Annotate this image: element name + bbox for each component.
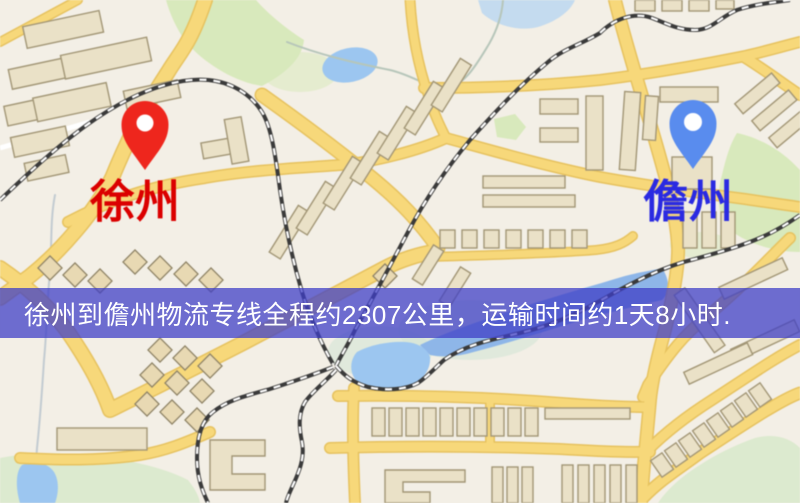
pin-hole bbox=[137, 115, 154, 132]
route-info-text: 徐州到儋州物流专线全程约2307公里，运输时间约1天8小时. bbox=[24, 295, 731, 332]
logistics-route-map-screenshot: 徐州 儋州 徐州到儋州物流专线全程约2307公里，运输时间约1天8小时. bbox=[0, 0, 800, 503]
destination-label: 儋州 bbox=[643, 177, 733, 227]
origin-label: 徐州 bbox=[89, 177, 180, 227]
route-info-banner: 徐州到儋州物流专线全程约2307公里，运输时间约1天8小时. bbox=[0, 288, 800, 338]
map-canvas: 徐州 儋州 bbox=[0, 0, 800, 503]
pin-hole bbox=[684, 113, 702, 131]
